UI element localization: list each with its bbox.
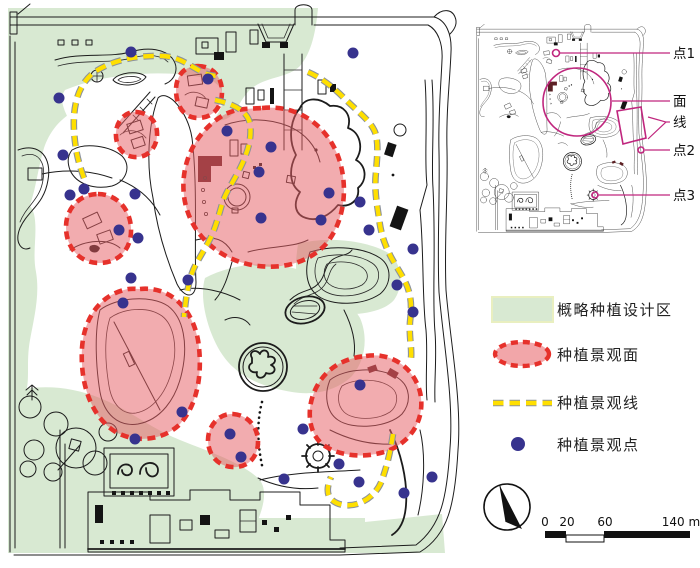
north-compass [484,484,530,530]
scale-segment-black-2 [604,531,690,538]
scale-segment-black-1 [545,531,566,538]
legend-label: 种植景观线 [557,394,640,412]
figure-canvas: 点1 面 线 点2 点3 概略种植设计区 种植景观面 种植景观线 种植景观点 [0,0,700,568]
inset-label-surface: 面 [673,94,687,110]
planting-area-region [8,199,37,395]
inset-label-point1: 点1 [673,46,695,62]
inset-label-point2: 点2 [673,143,695,159]
legend-item-planting-area: 概略种植设计区 [492,297,673,322]
legend-item-landscape-line: 种植景观线 [493,394,640,412]
legend-item-landscape-point: 种植景观点 [511,436,640,454]
legend-item-landscape-surface: 种植景观面 [495,342,640,366]
inset-label-point3: 点3 [673,188,695,204]
scale-segment-white [566,535,604,542]
scale-tick-20: 20 [559,515,574,529]
legend-label: 概略种植设计区 [557,301,673,319]
inset-labels: 点1 面 线 点2 点3 [673,46,695,204]
scale-tick-60: 60 [597,515,612,529]
line-marker [617,107,646,144]
planting-design-figure: 点1 面 线 点2 点3 概略种植设计区 种植景观面 种植景观线 种植景观点 [0,0,700,568]
scale-bar: 0 20 60 140 m [541,515,700,542]
inset-map: 点1 面 线 点2 点3 [477,24,695,232]
scale-tick-0: 0 [541,515,549,529]
green-area-swatch [492,297,553,322]
blue-point-swatch [511,437,525,451]
legend-label: 种植景观点 [557,436,640,454]
leader-line [648,117,666,139]
scale-end-label: 140 m [662,515,700,529]
inset-label-line: 线 [673,115,687,131]
point1-marker [553,50,560,57]
surface-marker [543,68,611,136]
main-map [8,4,459,555]
legend-label: 种植景观面 [557,346,640,364]
red-dashed-surface-swatch [495,342,549,366]
legend: 概略种植设计区 种植景观面 种植景观线 种植景观点 [492,297,673,454]
